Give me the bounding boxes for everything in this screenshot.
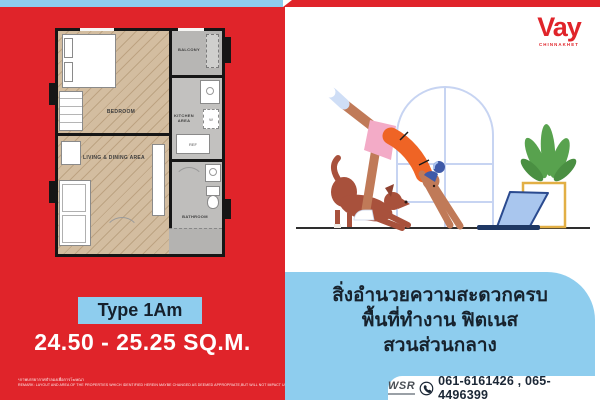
armchair: [61, 141, 81, 165]
poster: BEDROOM BALCONY W REF KITCHEN AREA LIVIN…: [0, 0, 600, 400]
agency-logo-underline: [388, 393, 415, 395]
disclaimer-remark: REMARK: LAYOUT AND AREA OF THE PROPERTIE…: [18, 383, 311, 387]
toilet: [207, 195, 219, 209]
wardrobe: [59, 91, 83, 131]
bathroom-label: BATHROOM: [172, 214, 218, 219]
disclaimer-thai: *ภาพบรรยากาศจำลองเพื่อการโฆษณา: [18, 376, 84, 383]
wall: [169, 159, 222, 162]
amenity-line-3: สวนส่วนกลาง: [285, 336, 595, 355]
brand-logo: Vay CHINNAKHET: [531, 14, 587, 47]
door-arc: [104, 217, 140, 253]
top-strip-blue: [0, 0, 283, 7]
washer: W: [203, 109, 219, 129]
amenity-line-2: พื้นที่ทำงาน ฟิตเนส: [285, 311, 595, 330]
window-gap: [178, 28, 204, 31]
phone-numbers: 061-6161426 , 065-4496399: [438, 374, 600, 400]
yoga-illustration: [288, 62, 596, 237]
top-strip-red: [283, 0, 600, 7]
sink-basin: [209, 168, 217, 176]
agency-logo: WSR: [388, 381, 415, 395]
shower-zone: [169, 228, 222, 254]
living-label: LIVING & DINING AREA: [78, 155, 150, 161]
sofa-cushion: [62, 184, 86, 212]
sofa-cushion: [62, 215, 86, 243]
contact-bar: WSR 061-6161426 , 065-4496399: [388, 376, 600, 400]
sink-basin: [206, 87, 214, 95]
floor-plan: BEDROOM BALCONY W REF KITCHEN AREA LIVIN…: [55, 28, 225, 257]
wall-column: [49, 181, 55, 203]
wall: [169, 75, 222, 78]
bedroom-label: BEDROOM: [90, 109, 152, 115]
tv-cabinet: [152, 144, 165, 216]
unit-area: 24.50 - 25.25 SQ.M.: [0, 329, 285, 356]
ac-unit: [206, 34, 219, 68]
brand-location: CHINNAKHET: [531, 42, 587, 47]
agency-name: WSR: [388, 380, 415, 392]
wall-column: [225, 199, 231, 219]
amenity-line-1: สิ่งอำนวยความสะดวกครบ: [285, 286, 595, 305]
window-gap: [80, 28, 114, 31]
wall: [169, 31, 172, 254]
fridge: REF: [176, 134, 210, 154]
wall: [58, 133, 169, 136]
pillow: [64, 62, 73, 82]
wall-column: [225, 37, 231, 63]
pillow: [64, 38, 73, 58]
balcony-label: BALCONY: [170, 47, 208, 52]
wall-column: [49, 83, 55, 105]
phone-icon: [419, 381, 434, 396]
brand-name: Vay: [531, 14, 587, 41]
unit-type-badge: Type 1Am: [78, 297, 202, 324]
door-arc: [174, 167, 204, 197]
kitchen-label: KITCHEN AREA: [170, 113, 198, 123]
